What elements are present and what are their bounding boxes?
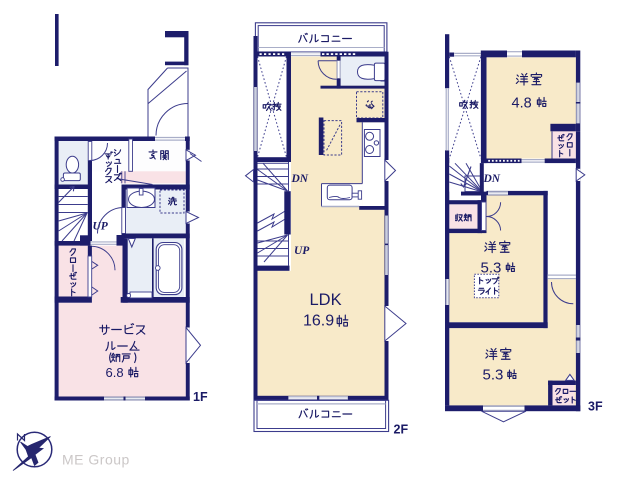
svg-text:4.8: 4.8 [512, 95, 532, 111]
svg-text:3F: 3F [588, 400, 603, 414]
svg-text:LDK: LDK [310, 291, 342, 309]
svg-text:2F: 2F [394, 422, 409, 436]
svg-text:ME Group: ME Group [62, 452, 130, 468]
svg-text:UP: UP [294, 245, 310, 257]
svg-text:5.3: 5.3 [483, 367, 504, 384]
svg-text:1F: 1F [193, 390, 208, 404]
svg-text:DN: DN [291, 173, 309, 185]
svg-text:5.3: 5.3 [481, 260, 502, 277]
svg-text:16.9: 16.9 [303, 313, 334, 330]
svg-text:UP: UP [93, 221, 109, 233]
svg-text:DN: DN [483, 173, 501, 185]
svg-text:6.8: 6.8 [106, 365, 124, 380]
